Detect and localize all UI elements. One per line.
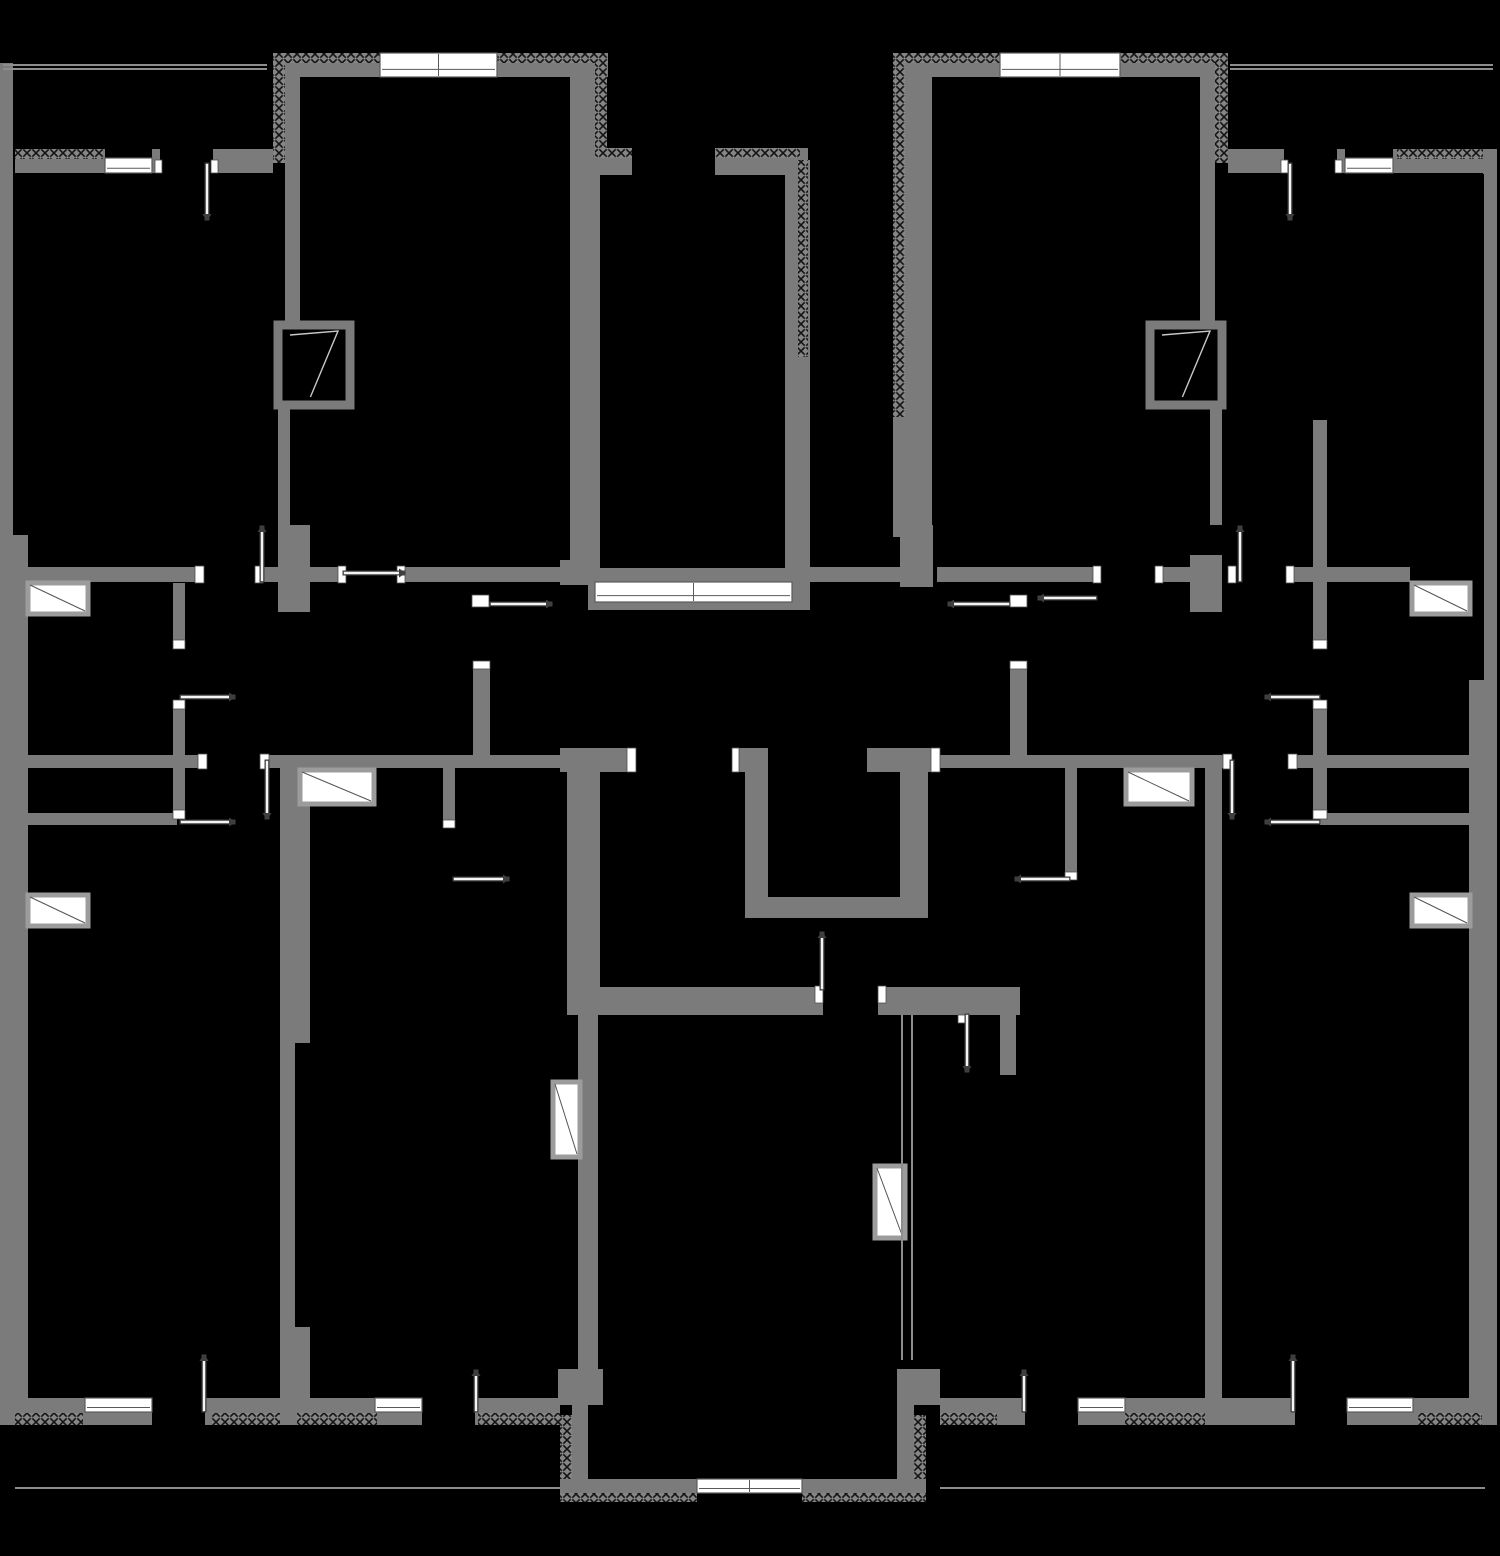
door-opening xyxy=(422,1398,475,1425)
wall-segment xyxy=(1484,150,1497,680)
door-jamb xyxy=(1010,661,1027,669)
wall-segment xyxy=(567,987,823,1015)
wall-segment xyxy=(1483,149,1497,174)
wall-segment xyxy=(802,567,905,582)
wall-segment xyxy=(473,668,490,755)
insulated-wall-hatch xyxy=(802,1493,926,1502)
wall-segment xyxy=(278,405,290,525)
window xyxy=(375,1398,422,1412)
window xyxy=(1347,1398,1413,1412)
wall-segment xyxy=(1200,62,1215,325)
door-jamb xyxy=(1288,754,1297,769)
floor-plan-stage xyxy=(0,0,1500,1556)
wall-segment xyxy=(867,748,940,772)
balcony-rail xyxy=(901,1015,903,1360)
door-jamb xyxy=(627,748,636,772)
wall-segment xyxy=(768,897,900,918)
wall-segment xyxy=(1228,149,1284,173)
door-jamb xyxy=(211,160,218,173)
wall-segment xyxy=(28,813,177,825)
insulated-wall-hatch xyxy=(940,1413,997,1425)
door-jamb xyxy=(472,595,489,607)
insulated-wall-hatch xyxy=(560,1493,697,1502)
window xyxy=(85,1398,152,1412)
door-jamb xyxy=(931,748,940,772)
insulated-wall-hatch xyxy=(478,1413,560,1425)
door-jamb xyxy=(198,754,207,769)
door-jamb xyxy=(878,986,886,1003)
balcony-rail xyxy=(15,1487,560,1489)
door-jamb xyxy=(732,748,739,772)
insulated-wall-hatch xyxy=(1125,1413,1205,1425)
insulated-wall-hatch xyxy=(715,148,800,158)
door-jamb xyxy=(1313,810,1327,819)
wall-segment xyxy=(443,768,455,828)
insulated-wall-hatch xyxy=(560,1415,572,1479)
balcony-rail xyxy=(911,1015,913,1360)
wall-segment xyxy=(267,755,567,768)
wall-segment xyxy=(1190,555,1222,612)
wall-segment xyxy=(1205,768,1222,1398)
insulated-wall-hatch xyxy=(595,148,632,158)
shaft-box xyxy=(278,325,350,405)
wall-segment xyxy=(572,1405,588,1479)
insulated-wall-hatch xyxy=(15,1413,83,1425)
wall-segment xyxy=(937,567,1097,582)
door-jamb xyxy=(1313,700,1327,709)
wall-segment xyxy=(1290,567,1410,582)
door-jamb xyxy=(155,160,162,173)
wall-segment xyxy=(285,163,300,325)
wall-segment xyxy=(0,535,28,1398)
balcony-rail xyxy=(3,64,267,66)
insulated-wall-hatch xyxy=(1215,53,1228,163)
door-jamb xyxy=(1155,566,1163,583)
insulated-wall-hatch xyxy=(595,63,607,158)
wall-segment xyxy=(897,1369,940,1405)
wall-segment xyxy=(560,748,635,772)
wall-segment xyxy=(1469,680,1497,1398)
floor-plan-drawing xyxy=(0,0,1500,1556)
wall-segment xyxy=(280,1327,310,1398)
insulated-wall-hatch xyxy=(1418,1413,1482,1425)
door-jamb xyxy=(1010,595,1027,607)
wall-segment xyxy=(0,63,13,535)
wall-segment xyxy=(940,755,1225,768)
door-jamb xyxy=(1335,160,1342,173)
insulated-wall-hatch xyxy=(212,1413,280,1425)
balcony-rail xyxy=(1230,68,1493,70)
door-jamb xyxy=(1313,640,1327,649)
wall-segment xyxy=(578,1015,598,1400)
door-jamb xyxy=(1093,566,1101,583)
insulated-wall-hatch xyxy=(914,1415,926,1479)
wall-segment xyxy=(1210,405,1222,525)
door-jamb xyxy=(1228,566,1236,583)
door-opening xyxy=(1295,1398,1347,1425)
door-jamb xyxy=(173,640,185,649)
door-opening xyxy=(152,1398,205,1425)
wall-segment xyxy=(28,567,200,582)
wall-segment xyxy=(280,768,310,1043)
door-jamb xyxy=(473,661,490,669)
door-jamb xyxy=(173,810,185,819)
door-jamb xyxy=(1286,566,1294,583)
window xyxy=(1345,158,1393,173)
insulated-wall-hatch xyxy=(15,149,103,159)
insulated-wall-hatch xyxy=(798,160,808,357)
wall-segment xyxy=(560,560,600,585)
insulated-wall-hatch xyxy=(297,1413,377,1425)
door-jamb xyxy=(173,700,185,709)
wall-segment xyxy=(1065,768,1077,880)
wall-segment xyxy=(1163,567,1222,582)
balcony-rail xyxy=(1230,64,1493,66)
shaft-box xyxy=(1150,325,1222,405)
insulated-wall-hatch xyxy=(1397,149,1483,159)
wall-segment xyxy=(1000,1015,1016,1075)
wall-segment xyxy=(173,702,185,818)
door-jamb xyxy=(195,566,204,583)
wall-segment xyxy=(900,772,928,918)
insulated-wall-hatch xyxy=(893,57,905,417)
balcony-rail xyxy=(3,68,267,70)
wall-segment xyxy=(878,987,1020,1015)
wall-segment xyxy=(1313,702,1327,818)
wall-segment xyxy=(1313,420,1327,648)
door-opening xyxy=(1025,1398,1078,1425)
door-jamb xyxy=(1281,160,1288,173)
wall-segment xyxy=(397,567,560,582)
wall-segment xyxy=(280,1043,295,1327)
wall-segment xyxy=(1320,813,1470,825)
window xyxy=(105,158,152,173)
insulated-wall-hatch xyxy=(273,53,285,163)
wall-segment xyxy=(1010,668,1027,755)
wall-segment xyxy=(745,772,768,918)
balcony-rail xyxy=(940,1487,1485,1489)
wall-segment xyxy=(173,583,185,648)
window xyxy=(1078,1398,1125,1412)
door-jamb xyxy=(443,820,455,828)
wall-segment xyxy=(255,567,343,582)
wall-segment xyxy=(897,1405,914,1479)
wall-segment xyxy=(558,1369,603,1405)
wall-segment xyxy=(567,772,600,1015)
wall-segment xyxy=(213,149,273,173)
